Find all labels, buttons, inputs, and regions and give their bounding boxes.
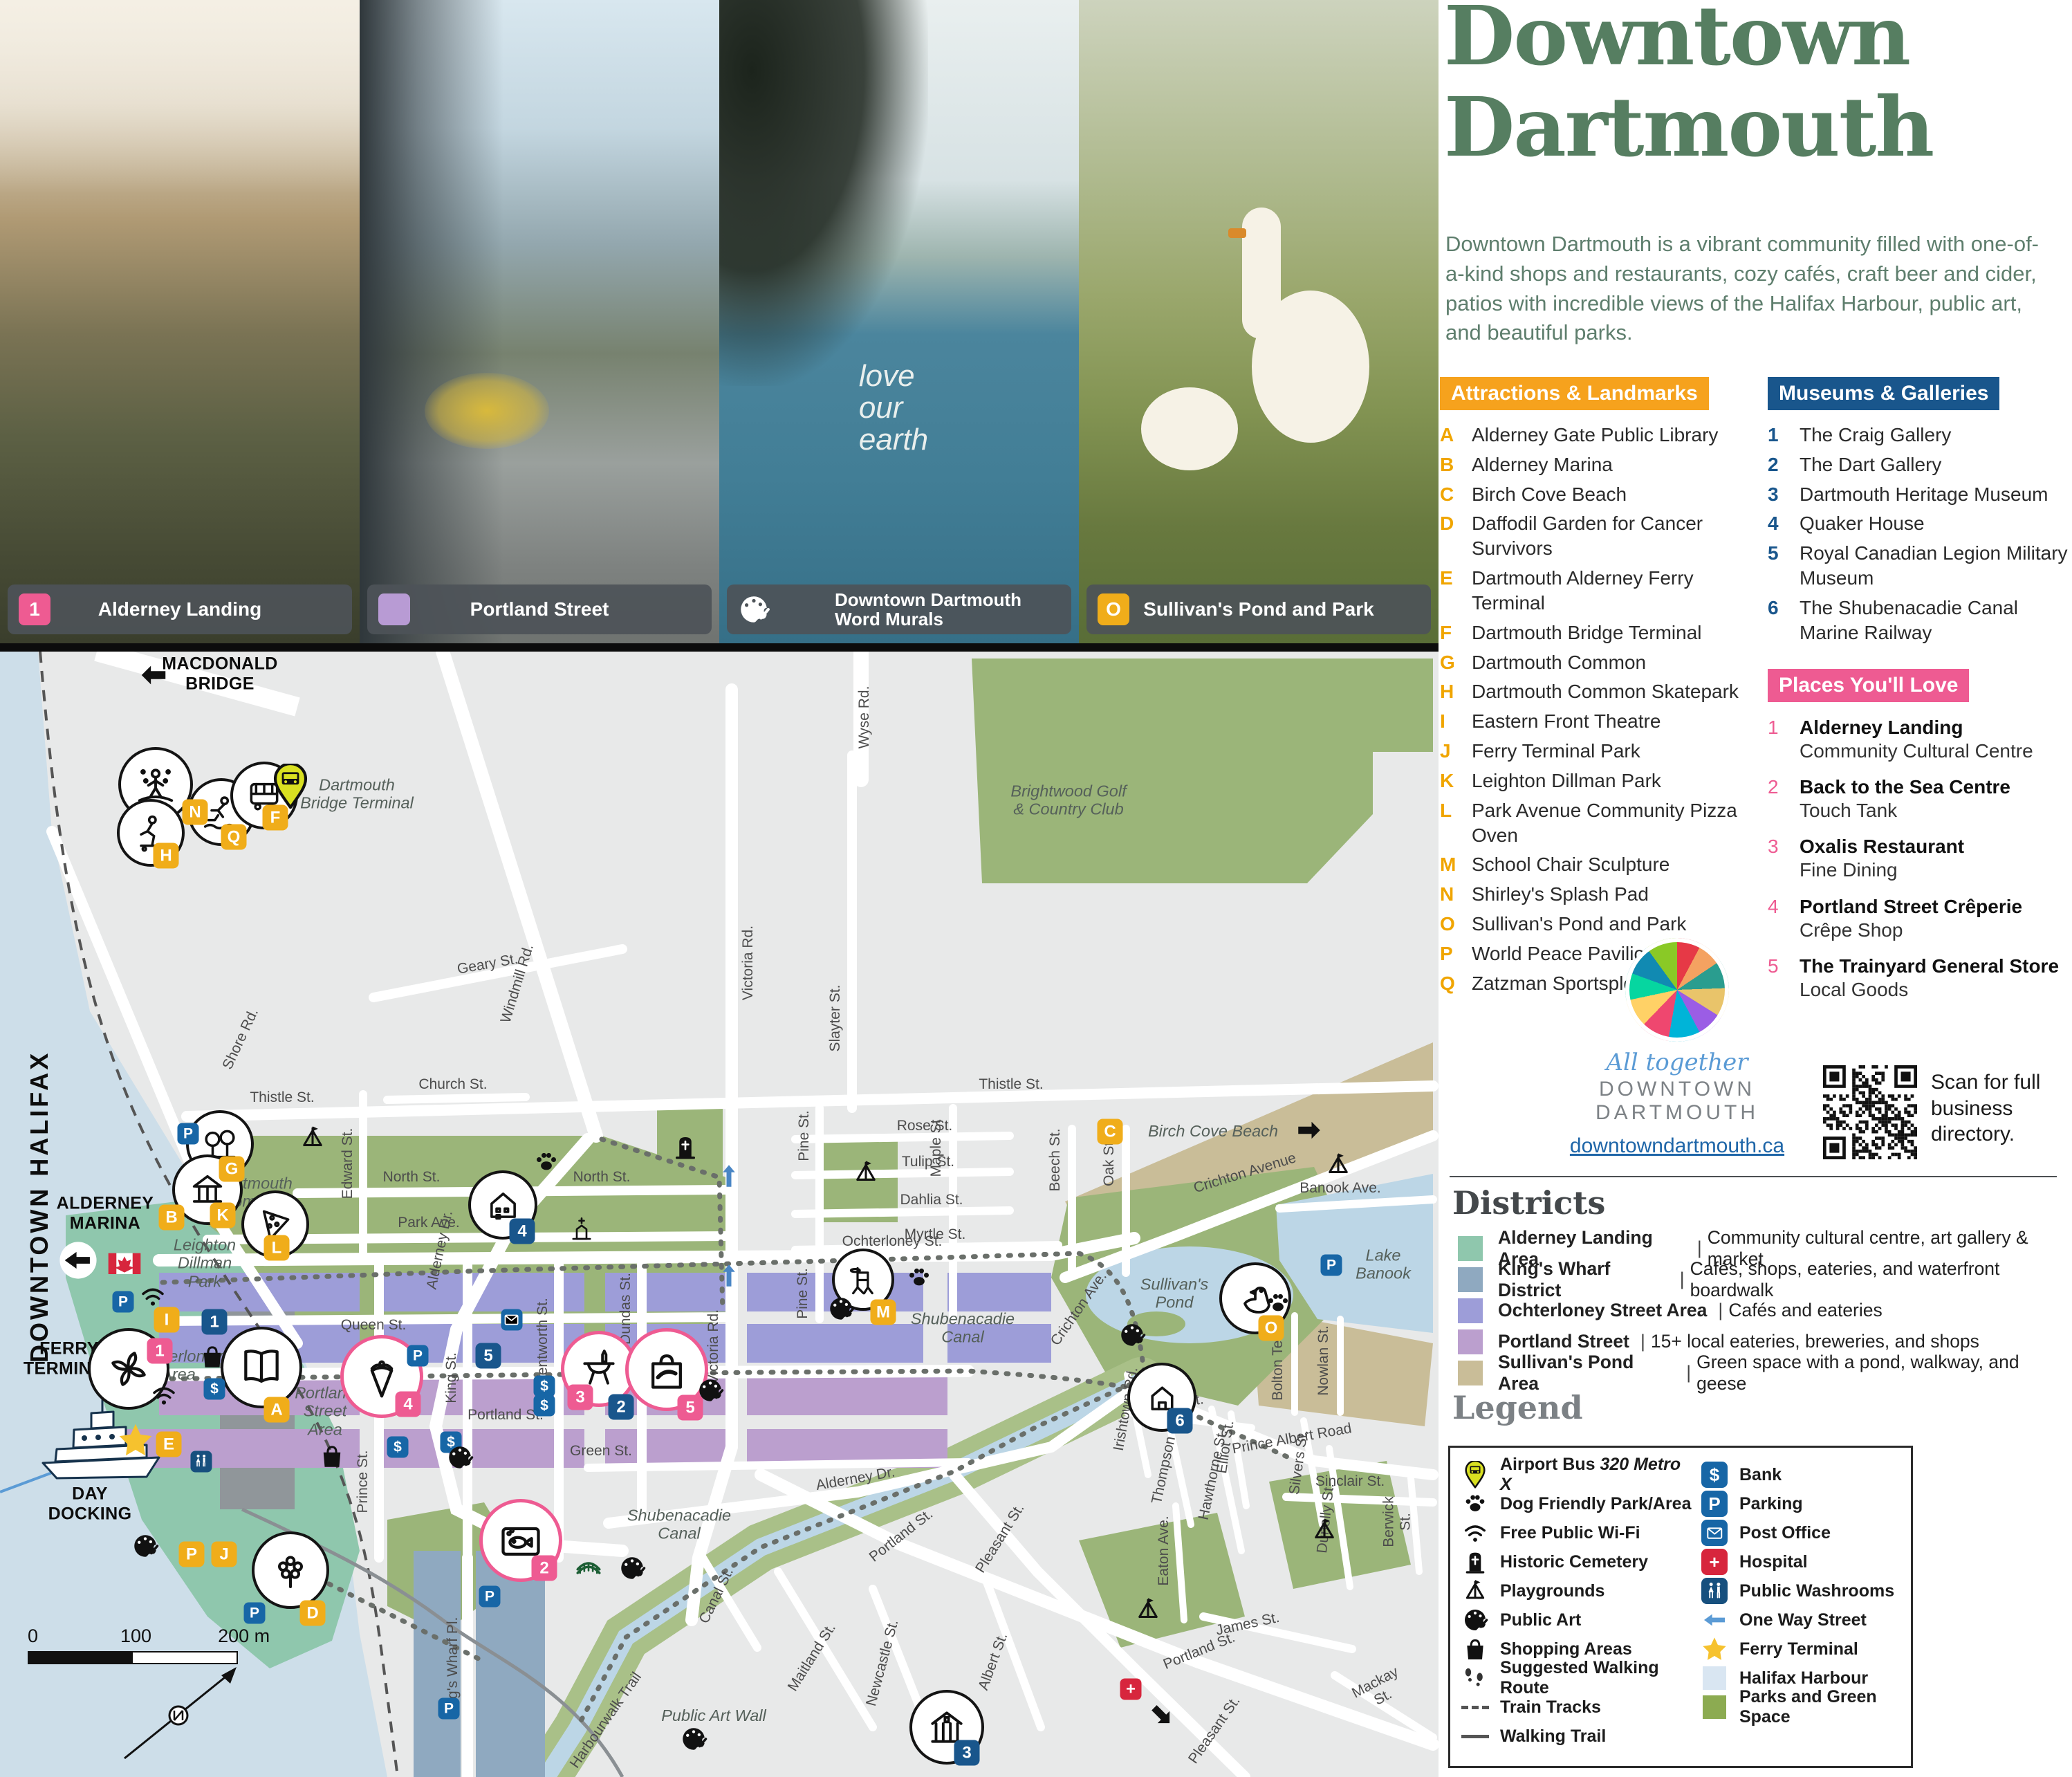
caption-label: Portland Street xyxy=(422,599,658,620)
attractions-header: Attractions & Landmarks xyxy=(1440,377,1709,410)
map-label: Nowlan St. xyxy=(1315,1325,1332,1396)
district-swatch xyxy=(1458,1236,1483,1261)
parking-icon: P xyxy=(1321,1255,1342,1276)
palette-icon xyxy=(1118,1320,1147,1350)
place-key: 4 xyxy=(1768,895,1797,942)
map-label: Shubenacadie Canal xyxy=(627,1507,731,1543)
place-item: Oxalis RestaurantFine Dining xyxy=(1800,835,2069,882)
map-marker-M[interactable]: M xyxy=(871,1300,896,1325)
caption-badge: O xyxy=(1098,593,1129,625)
list-key: D xyxy=(1440,511,1469,561)
star-icon xyxy=(116,1421,155,1460)
logo-block: All together DOWNTOWN DARTMOUTH downtown… xyxy=(1556,938,1798,1158)
legend-label: Airport Bus 320 Metro X xyxy=(1500,1455,1696,1495)
paw-icon xyxy=(532,1148,561,1177)
map-label: Thistle St. xyxy=(250,1089,314,1106)
parking-icon: P xyxy=(407,1345,429,1367)
museums-places-column: Museums & Galleries 1The Craig Gallery2T… xyxy=(1768,377,2069,1002)
legend-label: Parks and Green Space xyxy=(1739,1687,1905,1727)
map-label: Birch Cove Beach xyxy=(1148,1122,1278,1140)
flagCA-icon xyxy=(105,1245,144,1284)
photo-caption-1: 1Alderney Landing xyxy=(8,584,352,634)
list-item: Alderney Marina xyxy=(1472,452,1764,477)
buspin-icon xyxy=(268,764,313,809)
map-marker-1[interactable]: 1 xyxy=(202,1309,228,1335)
arrR-icon xyxy=(1295,1116,1324,1145)
map-label: Beech St. xyxy=(1047,1128,1064,1191)
list-item: Royal Canadian Legion Military Museum xyxy=(1800,541,2069,591)
place-key: 1 xyxy=(1768,716,1797,763)
legend-label: Historic Cemetery xyxy=(1500,1552,1648,1572)
list-key: 2 xyxy=(1768,452,1797,477)
list-item: Dartmouth Heritage Museum xyxy=(1800,482,2069,507)
legend-label: Playgrounds xyxy=(1500,1581,1604,1601)
map-marker-4[interactable]: 4 xyxy=(510,1219,535,1244)
district-row: King's Wharf District|Cafés, shops, eate… xyxy=(1458,1264,2066,1295)
map-marker-2[interactable]: 2 xyxy=(532,1556,557,1581)
list-item: Alderney Gate Public Library xyxy=(1472,423,1764,448)
list-key: J xyxy=(1440,739,1469,764)
map-label: King St. xyxy=(443,1352,460,1403)
map-marker-3[interactable]: 3 xyxy=(568,1385,593,1410)
place-key: 2 xyxy=(1768,775,1797,822)
place-item: Portland Street CrêperieCrêpe Shop xyxy=(1800,895,2069,942)
place-key: 3 xyxy=(1768,835,1797,882)
map-label: Banook Ave. xyxy=(1299,1180,1381,1197)
list-item: Dartmouth Bridge Terminal xyxy=(1472,620,1764,645)
legend-label: Hospital xyxy=(1739,1552,1808,1572)
caption-label: Downtown Dartmouth Word Murals xyxy=(777,590,1021,629)
goose-body-2 xyxy=(1141,387,1238,470)
logo-name: DOWNTOWN DARTMOUTH xyxy=(1556,1078,1798,1125)
wash-icon xyxy=(1701,1577,1728,1605)
map-marker-Q[interactable]: Q xyxy=(221,825,247,850)
legend-label: Dog Friendly Park/Area xyxy=(1500,1494,1691,1514)
scale-200: 200 m xyxy=(218,1626,270,1647)
bank-icon: $ xyxy=(204,1379,225,1400)
map-label: Edward St. xyxy=(340,1128,356,1199)
list-item: The Dart Gallery xyxy=(1800,452,2069,477)
qr-caption: Scan for full business directory. xyxy=(1931,1069,2069,1148)
parking-icon: P xyxy=(178,1123,199,1145)
washroom-icon xyxy=(191,1451,212,1473)
playground-icon xyxy=(298,1123,327,1152)
map-marker-4[interactable]: 4 xyxy=(396,1392,421,1417)
park-icon: P xyxy=(1701,1490,1728,1518)
arrLC-icon xyxy=(58,1240,98,1280)
map-label: Green St. xyxy=(570,1443,632,1460)
map-marker-D[interactable]: D xyxy=(300,1601,326,1626)
photo-portland-street xyxy=(360,0,719,643)
list-item: The Shubenacadie Canal Marine Railway xyxy=(1800,596,2069,645)
map-label: Public Art Wall xyxy=(661,1706,766,1724)
legend-label: Train Tracks xyxy=(1500,1697,1601,1718)
map-marker-B[interactable]: B xyxy=(159,1205,185,1231)
map-marker-3[interactable]: 3 xyxy=(954,1740,980,1766)
legend-row: Post Office xyxy=(1701,1518,1905,1547)
map-label: Dahlia St. xyxy=(900,1192,963,1208)
intro-paragraph: Downtown Dartmouth is a vibrant communit… xyxy=(1445,230,2054,348)
legend-label: Post Office xyxy=(1739,1523,1831,1543)
legend-row: Free Public Wi-Fi xyxy=(1461,1518,1696,1547)
downtown-halifax-label: DOWNTOWN HALIFAX xyxy=(25,975,54,1363)
legend-row: Dog Friendly Park/Area xyxy=(1461,1489,1696,1518)
caption-badge: 1 xyxy=(19,593,50,625)
list-key: B xyxy=(1440,452,1469,477)
goose-beak xyxy=(1228,228,1246,238)
oneway-icon xyxy=(714,1161,743,1190)
photo-alderney-landing xyxy=(0,0,360,643)
palette-icon xyxy=(445,1443,474,1472)
list-item: Eastern Front Theatre xyxy=(1472,709,1764,734)
playground-icon xyxy=(1461,1577,1489,1605)
bag-icon xyxy=(1461,1635,1489,1663)
list-key: K xyxy=(1440,768,1469,793)
legend-label: Halifax Harbour xyxy=(1739,1668,1868,1688)
map-label: Wyse Rd. xyxy=(856,686,873,749)
playground-icon xyxy=(1134,1595,1163,1624)
legend-row: +Hospital xyxy=(1701,1547,1905,1576)
legend-box: Airport Bus 320 Metro XDog Friendly Park… xyxy=(1448,1446,1913,1768)
photo-sullivans-pond xyxy=(1079,0,1439,643)
legend-header: Legend xyxy=(1452,1389,1583,1426)
map-marker-G[interactable]: G xyxy=(219,1157,245,1182)
place-item: Alderney LandingCommunity Cultural Centr… xyxy=(1800,716,2069,763)
list-item: Ferry Terminal Park xyxy=(1472,739,1764,764)
list-item: Dartmouth Common xyxy=(1472,650,1764,675)
legend-row: $Bank xyxy=(1701,1460,1905,1489)
legend-row: Suggested Walking Route xyxy=(1461,1664,1696,1693)
map-marker-H[interactable]: H xyxy=(154,843,179,869)
map-label: Shubenacadie Canal xyxy=(911,1310,1015,1347)
legend-label: Ferry Terminal xyxy=(1739,1639,1858,1659)
legend-right-column: $BankPParkingPost Office+HospitalPublic … xyxy=(1701,1460,1905,1722)
list-item: Shirley's Splash Pad xyxy=(1472,882,1764,907)
footsteps-icon xyxy=(1461,1664,1489,1692)
legend-row: Walking Trail xyxy=(1461,1722,1696,1751)
map-marker-A[interactable]: A xyxy=(264,1397,290,1423)
wifi-icon xyxy=(138,1282,167,1311)
map-label: ALDERNEY MARINA xyxy=(57,1193,154,1233)
list-item: School Chair Sculpture xyxy=(1472,852,1764,877)
place-item: Back to the Sea CentreTouch Tank xyxy=(1800,775,2069,822)
places-header: Places You'll Love xyxy=(1768,669,1969,702)
list-key: H xyxy=(1440,679,1469,704)
book-poi-icon[interactable] xyxy=(221,1327,302,1408)
list-key: G xyxy=(1440,650,1469,675)
parking-icon: P xyxy=(479,1586,501,1608)
map-label: Maple St xyxy=(928,1120,945,1177)
paw-icon xyxy=(905,1263,934,1292)
attractions-list: AAlderney Gate Public LibraryBAlderney M… xyxy=(1440,423,1764,996)
divider-bar xyxy=(0,643,1439,652)
map-marker-5[interactable]: 5 xyxy=(476,1343,501,1369)
legend-label: Parking xyxy=(1739,1494,1803,1514)
playground-icon xyxy=(851,1158,880,1187)
list-key: F xyxy=(1440,620,1469,645)
list-item: The Craig Gallery xyxy=(1800,423,2069,448)
map-label: North St. xyxy=(383,1169,441,1186)
map-marker-N[interactable]: N xyxy=(183,800,208,825)
palette-icon xyxy=(679,1724,708,1753)
paw-icon xyxy=(1461,1490,1489,1518)
list-key: 6 xyxy=(1768,596,1797,645)
district-swatch xyxy=(1458,1267,1483,1292)
map-marker-I[interactable]: I xyxy=(154,1307,180,1333)
parking-icon: P xyxy=(244,1603,266,1624)
oneway-icon xyxy=(1701,1606,1728,1634)
legend-label: One Way Street xyxy=(1739,1610,1867,1630)
page-title: Downtown Dartmouth xyxy=(1444,0,2066,173)
list-item: Dartmouth Alderney Ferry Terminal xyxy=(1472,566,1764,616)
list-key: C xyxy=(1440,482,1469,507)
swatch-icon xyxy=(1701,1693,1728,1721)
list-item: Daffodil Garden for Cancer Survivors xyxy=(1472,511,1764,561)
photo-caption-2: Portland Street xyxy=(367,584,712,634)
parking-icon: P xyxy=(438,1698,460,1720)
palette-icon xyxy=(737,592,771,627)
list-key: N xyxy=(1440,882,1469,907)
legend-label: Public Art xyxy=(1500,1610,1581,1630)
museums-list: 1The Craig Gallery2The Dart Gallery3Dart… xyxy=(1768,423,2069,645)
legend-row: Parks and Green Space xyxy=(1701,1693,1905,1722)
legend-row: PParking xyxy=(1701,1489,1905,1518)
map-label: DAY DOCKING xyxy=(48,1484,132,1524)
legend-label: Public Washrooms xyxy=(1739,1581,1894,1601)
list-key: 5 xyxy=(1768,541,1797,591)
palette-icon xyxy=(826,1294,855,1323)
list-key: 4 xyxy=(1768,511,1797,536)
website-link[interactable]: downtowndartmouth.ca xyxy=(1556,1134,1798,1158)
map-marker-L[interactable]: L xyxy=(264,1235,290,1261)
map-label: Pine St. xyxy=(795,1268,811,1319)
map-label: Leighton Dillman Park xyxy=(174,1236,236,1291)
museums-header: Museums & Galleries xyxy=(1768,377,1999,410)
legend-left-column: Airport Bus 320 Metro XDog Friendly Park… xyxy=(1461,1460,1696,1751)
legend-label: Bank xyxy=(1739,1465,1782,1485)
map-label: Berwick St. xyxy=(1380,1496,1413,1547)
list-key: O xyxy=(1440,912,1469,937)
caption-label: Alderney Landing xyxy=(50,599,310,620)
church-icon xyxy=(567,1215,596,1244)
map-label: Thistle St. xyxy=(979,1076,1043,1093)
list-item: Sullivan's Pond and Park xyxy=(1472,912,1764,937)
scale-100: 100 xyxy=(120,1626,151,1647)
list-key: 1 xyxy=(1768,423,1797,448)
hospital-icon: + xyxy=(1120,1679,1142,1700)
logo-tagline: All together xyxy=(1556,1049,1798,1076)
map-label: Lake Banook xyxy=(1356,1246,1411,1283)
star-icon xyxy=(1701,1635,1728,1663)
cemetery-icon xyxy=(1461,1548,1489,1576)
map-marker-P[interactable]: P xyxy=(179,1542,205,1567)
map-marker-E[interactable]: E xyxy=(156,1432,182,1457)
map-label: Victoria Rd. xyxy=(740,926,757,1000)
caption-badge xyxy=(378,593,410,625)
arrL-icon xyxy=(138,659,169,691)
map-label: Portland St. xyxy=(468,1407,544,1424)
list-item: Birch Cove Beach xyxy=(1472,482,1764,507)
bridgeG-icon xyxy=(574,1549,603,1578)
legend-row: Historic Cemetery xyxy=(1461,1547,1696,1576)
map-label: Prince St. xyxy=(355,1450,371,1513)
playground-icon xyxy=(1310,1516,1339,1545)
districts-header: Districts xyxy=(1452,1184,1605,1222)
compass xyxy=(104,1655,256,1772)
district-swatch xyxy=(1458,1361,1483,1385)
map-label: Slayter St. xyxy=(827,985,844,1052)
bag-icon xyxy=(198,1342,227,1371)
map-marker-J[interactable]: J xyxy=(212,1542,237,1567)
flower-poi-icon[interactable] xyxy=(252,1531,329,1609)
map-marker-6[interactable]: 6 xyxy=(1167,1408,1193,1434)
legend-row: Airport Bus 320 Metro X xyxy=(1461,1460,1696,1489)
paw-icon xyxy=(1264,1289,1293,1318)
list-key: I xyxy=(1440,709,1469,734)
scale-0: 0 xyxy=(28,1626,37,1647)
line-icon xyxy=(1461,1722,1489,1750)
map-label: Dartmouth Bridge Terminal xyxy=(300,776,414,813)
playground-icon xyxy=(1324,1150,1353,1179)
bag-icon xyxy=(317,1442,346,1471)
hosp-icon: + xyxy=(1701,1548,1728,1576)
list-key: A xyxy=(1440,423,1469,448)
legend-row: Playgrounds xyxy=(1461,1576,1696,1605)
wifi-icon xyxy=(1461,1519,1489,1547)
goose-neck xyxy=(1242,208,1281,339)
map-label: Oak St. xyxy=(1101,1138,1118,1186)
bank-icon: $ xyxy=(534,1395,555,1417)
map-label: Church St. xyxy=(418,1076,487,1093)
dash-icon xyxy=(1461,1693,1489,1721)
palette-icon xyxy=(618,1554,647,1583)
photo-word-murals: love our earth xyxy=(719,0,1079,643)
map-label: North St. xyxy=(573,1169,631,1186)
post-office-icon xyxy=(501,1309,523,1331)
page: love our earth 1Alderney LandingPortland… xyxy=(0,0,2072,1777)
legend-label: Walking Trail xyxy=(1500,1727,1606,1747)
list-item: Leighton Dillman Park xyxy=(1472,768,1764,793)
list-key: M xyxy=(1440,852,1469,877)
place-item: The Trainyard General StoreLocal Goods xyxy=(1800,955,2069,1002)
map-marker-O[interactable]: O xyxy=(1259,1316,1284,1341)
legend-row: One Way Street xyxy=(1701,1605,1905,1635)
post-icon xyxy=(1701,1519,1728,1547)
bank-icon: $ xyxy=(534,1376,555,1397)
section-divider xyxy=(1450,1176,2057,1177)
legend-row: Public Art xyxy=(1461,1605,1696,1635)
legend-row: Ferry Terminal xyxy=(1701,1635,1905,1664)
swatch-icon xyxy=(1701,1664,1728,1692)
qr-code xyxy=(1823,1065,1917,1159)
downtown-dartmouth-logo xyxy=(1625,938,1729,1042)
cemetery-icon xyxy=(671,1132,700,1161)
wifi-icon xyxy=(149,1381,178,1410)
map[interactable]: DOWNTOWN HALIFAX 0 100 200 m xyxy=(0,652,1439,1777)
list-item: Dartmouth Common Skatepark xyxy=(1472,679,1764,704)
map-label: Pine St. xyxy=(796,1110,813,1161)
list-key: P xyxy=(1440,941,1469,966)
list-item: Quaker House xyxy=(1800,511,2069,536)
palette-icon xyxy=(1461,1606,1489,1634)
photo-caption-4: OSullivan's Pond and Park xyxy=(1086,584,1431,634)
district-swatch xyxy=(1458,1298,1483,1323)
map-marker-1[interactable]: 1 xyxy=(147,1338,173,1364)
map-marker-C[interactable]: C xyxy=(1098,1119,1123,1145)
list-key: L xyxy=(1440,798,1469,848)
photo-caption-3: Downtown Dartmouth Word Murals xyxy=(727,584,1071,634)
palette-icon xyxy=(696,1376,725,1405)
bank-icon: $ xyxy=(1701,1461,1728,1489)
mural-text: love our earth xyxy=(859,360,928,457)
places-list: 1Alderney LandingCommunity Cultural Cent… xyxy=(1768,716,2069,1002)
legend-label: Suggested Walking Route xyxy=(1500,1658,1696,1698)
oneway-icon xyxy=(714,1261,743,1290)
list-item: Park Avenue Community Pizza Oven xyxy=(1472,798,1764,848)
map-label: Ochterloney St. xyxy=(842,1233,943,1250)
legend-label: Free Public Wi-Fi xyxy=(1500,1523,1640,1543)
parking-icon: P xyxy=(113,1291,134,1313)
districts-list: Alderney Landing Area|Community cultural… xyxy=(1458,1233,2066,1388)
map-marker-2[interactable]: 2 xyxy=(609,1394,634,1420)
map-label: Brightwood Golf & Country Club xyxy=(1010,782,1126,819)
list-key: E xyxy=(1440,566,1469,616)
attractions-column: Attractions & Landmarks AAlderney Gate P… xyxy=(1440,377,1764,996)
list-key: Q xyxy=(1440,971,1469,996)
buspin-icon xyxy=(1461,1461,1489,1489)
map-label: Dundas St. xyxy=(618,1273,634,1345)
legend-row: Public Washrooms xyxy=(1701,1576,1905,1605)
bank-icon: $ xyxy=(387,1437,409,1458)
map-label: Eaton Ave. xyxy=(1156,1516,1172,1585)
map-marker-K[interactable]: K xyxy=(210,1203,236,1228)
list-key: 3 xyxy=(1768,482,1797,507)
district-row: Sullivan's Pond Area|Green space with a … xyxy=(1458,1357,2066,1388)
district-swatch xyxy=(1458,1329,1483,1354)
palette-icon xyxy=(131,1531,160,1560)
map-label: MACDONALD BRIDGE xyxy=(162,654,277,694)
map-label: Queen St. xyxy=(341,1317,407,1334)
map-label: Sullivan's Pond xyxy=(1140,1276,1209,1312)
caption-label: Sullivan's Pond and Park xyxy=(1095,599,1422,620)
legend-label: Shopping Areas xyxy=(1500,1639,1632,1659)
